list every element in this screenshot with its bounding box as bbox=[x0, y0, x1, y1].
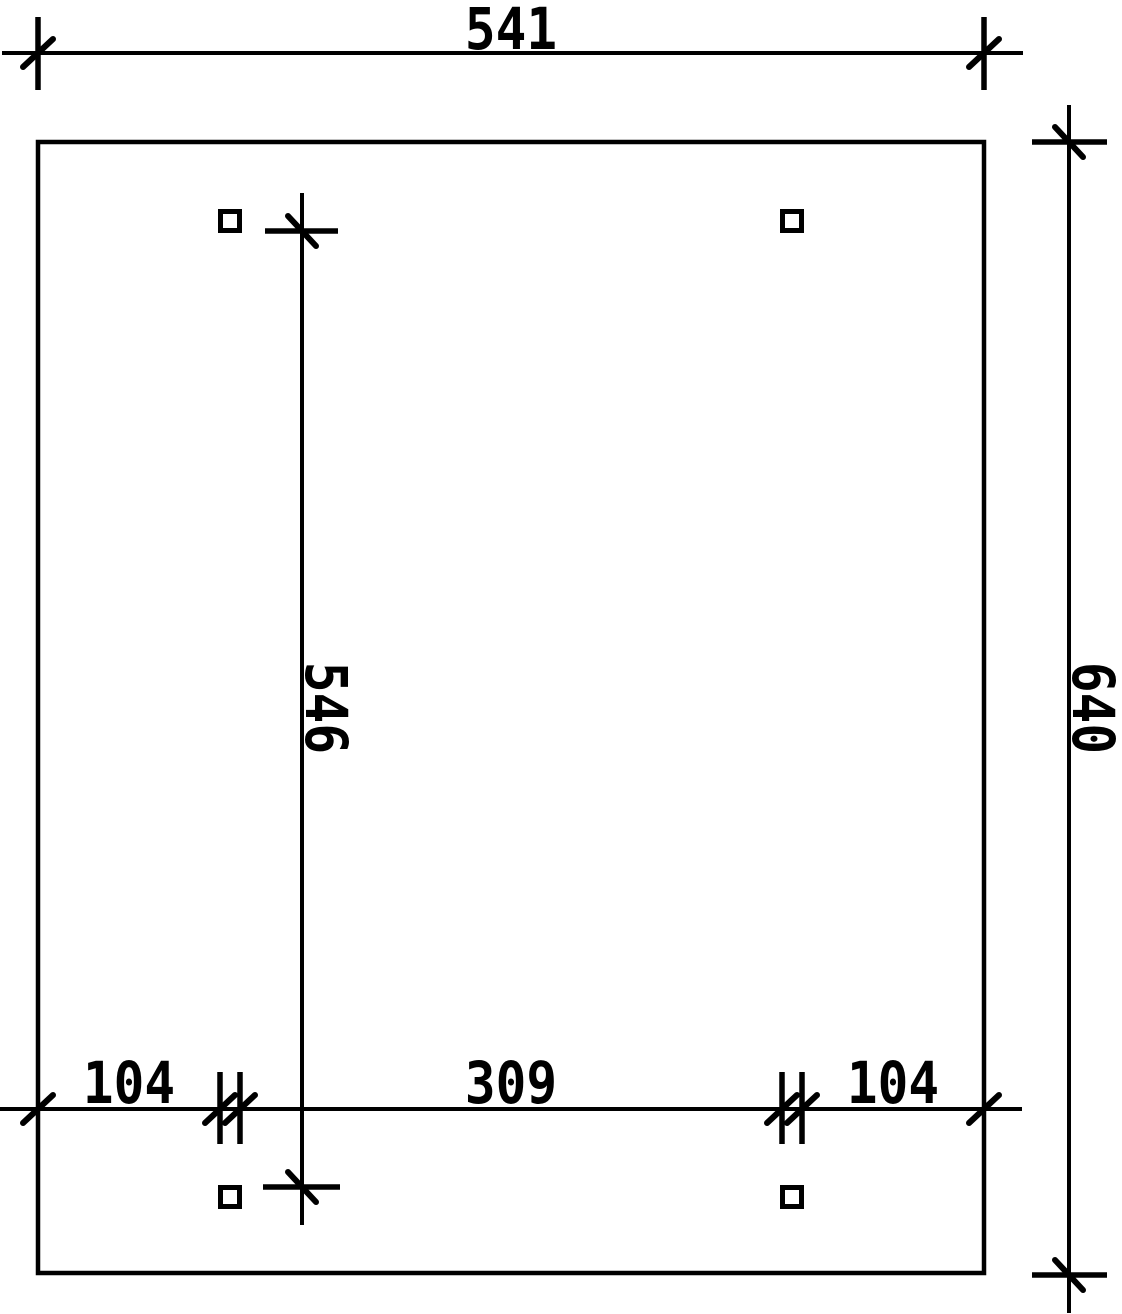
post-top-left bbox=[221, 212, 240, 231]
dimension-label-bottom-center: 309 bbox=[465, 1049, 557, 1117]
dimension-label-right: 640 bbox=[1059, 662, 1122, 754]
dimensioned-plan: 541 640 546 bbox=[0, 0, 1122, 1314]
post-bottom-right bbox=[783, 1188, 802, 1207]
dimension-top-width: 541 bbox=[2, 0, 1023, 90]
post-bottom-left bbox=[221, 1188, 240, 1207]
post-top-right bbox=[783, 212, 802, 231]
dimension-right-height: 640 bbox=[1032, 105, 1122, 1313]
dimension-middle-height: 546 bbox=[263, 193, 360, 1225]
dimension-label-bottom-left: 104 bbox=[83, 1049, 175, 1117]
dimension-label-bottom-right: 104 bbox=[847, 1049, 939, 1117]
technical-drawing-page: 541 640 546 bbox=[0, 0, 1122, 1314]
dimension-label-top: 541 bbox=[465, 0, 557, 63]
dimension-bottom-chain: 104 309 104 bbox=[0, 1049, 1022, 1144]
dimension-label-middle: 546 bbox=[292, 662, 360, 754]
